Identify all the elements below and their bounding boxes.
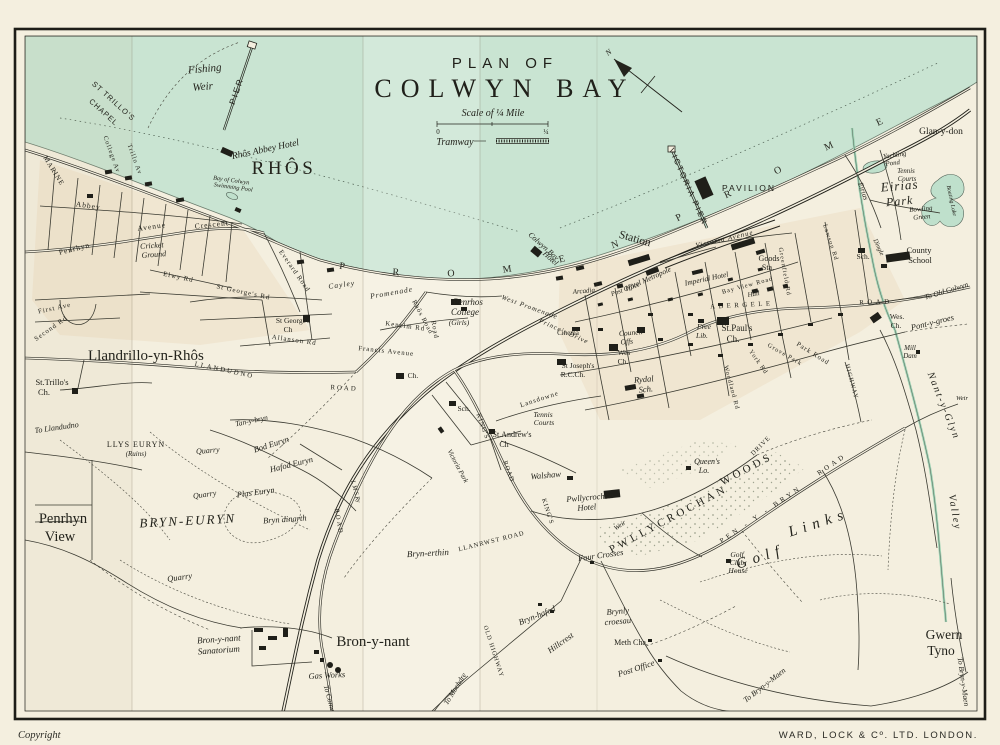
map-page: P R O M E N A D E P R O M E N A D E Fish…	[0, 0, 1000, 745]
map-label: Offs	[620, 336, 633, 346]
map-label: Penrhyn	[39, 511, 88, 527]
scale-zero: 0	[436, 128, 440, 136]
map-label: County	[906, 245, 932, 255]
map-label: Wes.	[890, 312, 905, 321]
map-label: ROAD	[859, 298, 892, 306]
map-label: Mill	[903, 344, 916, 352]
map-label: ROAD	[330, 384, 358, 392]
map-label: R.C.Ch.	[561, 370, 586, 379]
map-label: Ch	[499, 440, 508, 449]
map-label: Sta.	[762, 263, 774, 272]
map-label: View	[45, 529, 76, 545]
map-label: Tennis	[897, 168, 915, 175]
map-label: (Girls)	[449, 318, 470, 327]
map-title-line1: PLAN OF	[452, 55, 558, 72]
map-label: Meth Cha.	[614, 638, 648, 647]
map-label: Free	[696, 322, 712, 331]
map-label: Sch.	[457, 404, 470, 413]
map-label: Weir	[956, 395, 969, 402]
map-label: Tyno	[927, 643, 955, 658]
scale-quarter: ¼	[543, 128, 548, 136]
map-label: Glan-y-don	[919, 127, 963, 137]
map-label: Sch.	[856, 252, 869, 261]
map-label: Weir	[192, 80, 214, 94]
map-label: Queen's	[694, 457, 720, 466]
map-label: Goods	[759, 254, 780, 263]
map-label: (Ruins)	[126, 450, 147, 458]
map-label: Gas Works	[308, 669, 346, 681]
map-label: College	[451, 307, 479, 317]
map-label: PAVILION	[722, 183, 776, 193]
map-label: St.Paul's	[722, 323, 753, 333]
map-label: Hotel	[576, 501, 597, 513]
map-label: Gwern	[926, 627, 963, 642]
map-label: St Joseph's	[562, 361, 595, 370]
scale-label: Scale of ¼ Mile	[462, 108, 525, 119]
map-label: Bron-y-nant	[336, 634, 410, 650]
map-label: Cinema	[557, 329, 580, 337]
map-label: LLYS EURYN	[107, 440, 165, 449]
map-label: Ch.	[727, 334, 740, 344]
map-label: Lo.	[698, 466, 709, 475]
map-label: Dam	[902, 352, 917, 360]
map-title-line2: COLWYN BAY	[374, 74, 635, 103]
publisher-imprint: WARD, LOCK & Cº. LTD. LONDON.	[779, 730, 978, 741]
fold-band	[25, 36, 132, 711]
map-label: St George's	[276, 316, 310, 325]
map-label: Green	[913, 212, 931, 222]
map-label: St.Andrew's	[493, 430, 532, 439]
map-label: School	[908, 255, 932, 265]
map-label: St.Trillo's	[35, 377, 68, 387]
map-label: Penrhos	[452, 297, 483, 307]
map-label: Wes	[618, 348, 631, 357]
copyright-note: Copyright	[18, 730, 62, 741]
map-label: Ch.	[891, 321, 902, 330]
map-label: House	[727, 566, 748, 575]
colwyn-bay-map: P R O M E N A D E P R O M E N A D E Fish…	[0, 0, 1000, 745]
map-label: Sch.	[638, 383, 653, 394]
map-label: Courts	[534, 418, 555, 427]
map-label: RHÔS	[252, 157, 317, 179]
map-label: Llandrillo-yn-Rhôs	[88, 348, 204, 364]
map-label: Ground	[141, 249, 167, 260]
map-label: Lib.	[695, 331, 708, 340]
map-label: Ch	[284, 325, 293, 334]
tramway-label: Tramway	[436, 137, 474, 148]
map-label: Ch.	[408, 371, 419, 380]
map-label: Ch.	[38, 387, 50, 397]
map-label: Ch.	[618, 357, 629, 366]
